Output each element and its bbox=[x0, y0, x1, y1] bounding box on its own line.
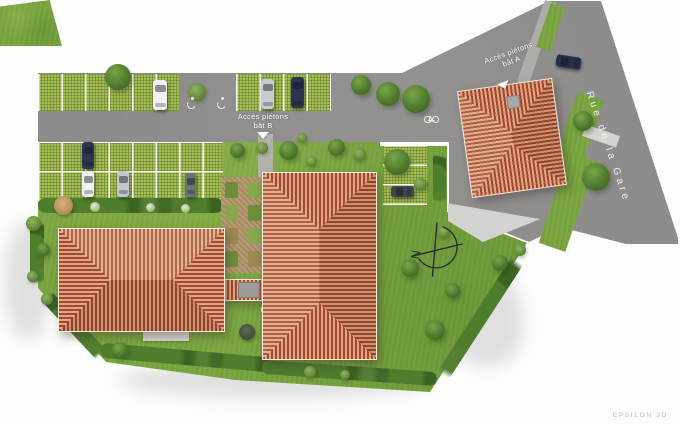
garden-bed bbox=[225, 251, 238, 267]
tree bbox=[105, 64, 131, 90]
access-b-line2: bât B bbox=[253, 121, 272, 130]
tree bbox=[402, 85, 430, 113]
garden-bed bbox=[225, 205, 238, 221]
bush bbox=[304, 366, 316, 378]
flower-bush bbox=[146, 203, 155, 212]
building-a-roof bbox=[457, 78, 567, 198]
car bbox=[261, 79, 274, 109]
tree bbox=[37, 243, 50, 256]
tree bbox=[230, 143, 245, 158]
building-b-roof bbox=[262, 172, 377, 360]
flower-bush bbox=[90, 202, 100, 212]
site-plan: Accès piétons bât B Accès piétons bât A … bbox=[0, 0, 680, 425]
tree bbox=[351, 75, 371, 95]
building-b-west-roof bbox=[58, 228, 225, 332]
access-b-label: Accès piétons bât B bbox=[231, 112, 295, 131]
bush bbox=[41, 293, 53, 305]
compass-north-letter: N bbox=[408, 249, 423, 260]
car bbox=[117, 171, 129, 197]
bush bbox=[26, 216, 41, 231]
car bbox=[391, 186, 414, 197]
wheelchair-icon bbox=[216, 97, 226, 107]
bicycle-icon bbox=[424, 114, 439, 123]
credit-text: EPSILON 3D bbox=[613, 412, 668, 419]
car bbox=[82, 171, 94, 197]
car bbox=[82, 142, 94, 169]
bush bbox=[306, 156, 317, 167]
bush bbox=[514, 244, 526, 256]
arrow-down-icon bbox=[257, 132, 269, 139]
garden-bed bbox=[248, 228, 261, 244]
access-b-line1: Accès piétons bbox=[238, 112, 289, 121]
tree bbox=[376, 82, 400, 106]
car bbox=[185, 173, 196, 197]
bush bbox=[297, 133, 307, 143]
car bbox=[291, 77, 304, 108]
chimney bbox=[506, 95, 521, 110]
tree bbox=[279, 141, 298, 160]
tree bbox=[112, 342, 128, 358]
garden-bed bbox=[225, 182, 238, 198]
tree bbox=[384, 149, 410, 175]
tree bbox=[425, 320, 445, 340]
parasol bbox=[239, 324, 255, 340]
parking-row bbox=[236, 74, 331, 111]
bush bbox=[340, 370, 350, 380]
parasol bbox=[54, 196, 73, 215]
bush bbox=[27, 271, 38, 282]
tree bbox=[492, 255, 508, 271]
wheelchair-icon bbox=[186, 97, 196, 107]
hedge bbox=[433, 148, 446, 208]
roof-vent bbox=[238, 282, 260, 298]
car bbox=[153, 80, 167, 110]
tree bbox=[582, 163, 610, 191]
garden-bed bbox=[248, 205, 261, 221]
garden-bed bbox=[248, 251, 261, 267]
garden-bed bbox=[248, 182, 261, 198]
garden-beds bbox=[221, 177, 268, 273]
bush bbox=[256, 142, 268, 154]
compass-north-icon: N bbox=[408, 221, 468, 279]
garden-bed bbox=[225, 228, 238, 244]
tree bbox=[445, 283, 460, 298]
lawn-patch bbox=[0, 0, 62, 46]
tree bbox=[328, 139, 345, 156]
bush bbox=[414, 178, 427, 191]
flower-bush bbox=[181, 204, 190, 213]
bush bbox=[353, 148, 366, 161]
